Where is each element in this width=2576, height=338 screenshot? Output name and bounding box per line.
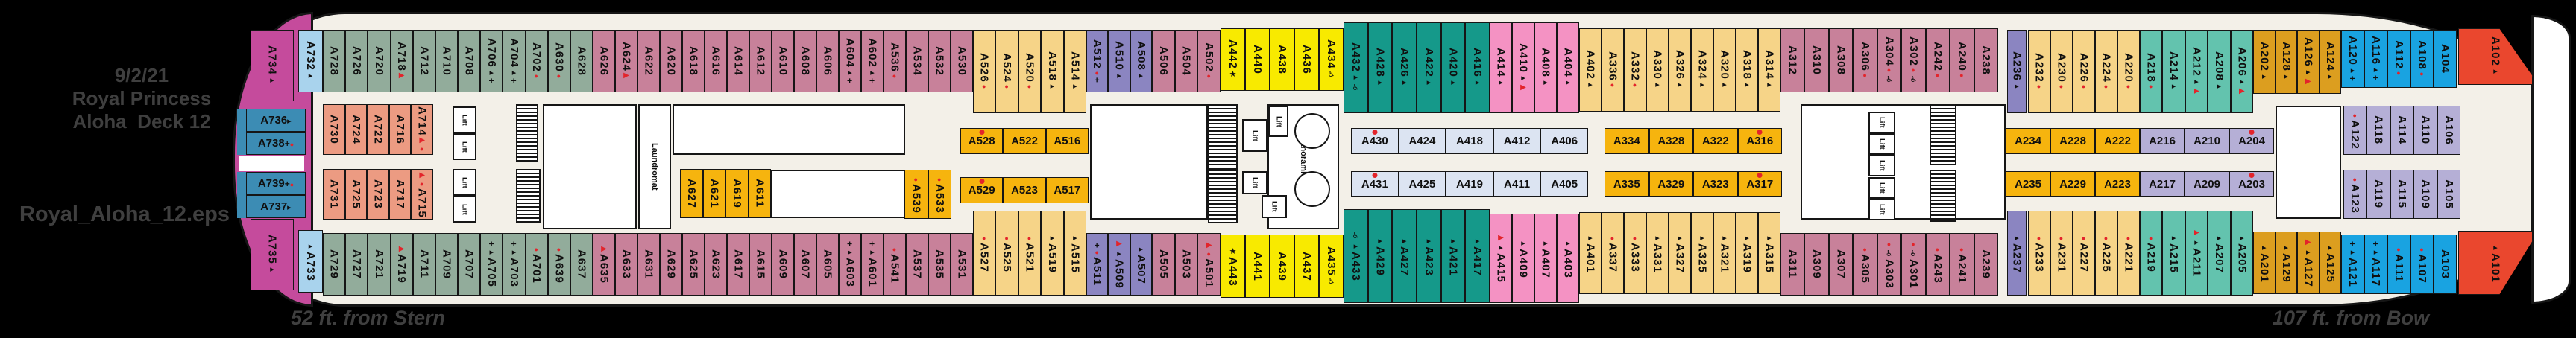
cabin-number: A624▶ xyxy=(621,42,632,80)
cabin-A623[interactable]: A623 xyxy=(705,233,727,296)
cabin-A401[interactable]: ▸A401 xyxy=(1579,212,1602,294)
cabin-A723[interactable]: A723 xyxy=(367,169,389,220)
cabin-A302[interactable]: A302●♿ xyxy=(1901,28,1925,92)
cabin-A242[interactable]: A242● xyxy=(1926,28,1950,92)
cabin-A502[interactable]: A502● xyxy=(1197,30,1221,92)
cabin-A539[interactable]: ●A539 xyxy=(904,170,928,219)
lift-box[interactable]: Lift xyxy=(453,196,476,223)
cabin-A303[interactable]: ●♿A303 xyxy=(1877,233,1901,296)
cabin-A410[interactable]: A410▸▶ xyxy=(1512,22,1534,113)
cabin-A402[interactable]: A402▸ xyxy=(1579,28,1602,112)
cabin-A443[interactable]: ★A443 xyxy=(1221,235,1245,298)
cabin-A428[interactable]: A428▸ xyxy=(1368,22,1393,113)
lift-box[interactable]: Lift xyxy=(453,133,476,160)
cabin-A406[interactable]: A406 xyxy=(1540,128,1588,154)
cabin-A232[interactable]: A232● xyxy=(2028,30,2050,113)
cabin-A301[interactable]: ●♿A301 xyxy=(1901,233,1925,296)
lift-box[interactable]: Lift xyxy=(1868,155,1895,176)
cabin-A416[interactable]: A416▸ xyxy=(1465,22,1490,113)
cabin-A704[interactable]: A704▸+ xyxy=(503,30,525,92)
cabin-A311[interactable]: A311 xyxy=(1780,233,1804,296)
cabin-A739[interactable]: A739+● xyxy=(246,172,306,195)
cabin-A525[interactable]: ●A525 xyxy=(995,211,1018,296)
cabin-number: A116▸+ xyxy=(2370,36,2381,81)
cabin-A101[interactable]: ▸A101 xyxy=(2458,231,2533,295)
cabin-A330[interactable]: A330▸ xyxy=(1646,28,1669,112)
cabin-A618[interactable]: A618 xyxy=(682,30,705,92)
cabin-A221[interactable]: ●A221 xyxy=(2117,211,2140,296)
cabin-A707[interactable]: A707 xyxy=(458,233,480,296)
cabin-A424[interactable]: A424 xyxy=(1399,128,1446,154)
cabin-A433[interactable]: ♿▸A433 xyxy=(1344,209,1368,303)
cabin-A511[interactable]: +●A511 xyxy=(1086,233,1108,296)
cabin-A243[interactable]: ●A243 xyxy=(1926,233,1950,296)
cabin-A610[interactable]: A610 xyxy=(772,30,794,92)
cabin-A501[interactable]: ▶●A501 xyxy=(1197,233,1221,296)
cabin-A530[interactable]: A530 xyxy=(951,30,973,92)
cabin-A208[interactable]: A208▸ xyxy=(2208,30,2230,113)
cabin-A241[interactable]: ●A241 xyxy=(1950,233,1974,296)
cabin-A425[interactable]: A425 xyxy=(1399,171,1446,197)
cabin-A333[interactable]: ●A333 xyxy=(1624,212,1646,294)
cabin-A628[interactable]: A628 xyxy=(570,30,593,92)
cabin-A537[interactable]: A537 xyxy=(906,233,928,296)
cabin-A336[interactable]: A336● xyxy=(1602,28,1624,112)
cabin-A536[interactable]: A536● xyxy=(884,30,906,92)
cabin-A604[interactable]: A604▸+ xyxy=(839,30,861,92)
cabin-A105[interactable]: A105 xyxy=(2437,170,2460,219)
cabin-A233[interactable]: ●A233 xyxy=(2028,211,2050,296)
cabin-A438[interactable]: A438 xyxy=(1270,28,1294,91)
cabin-A522[interactable]: A522 xyxy=(1003,128,1045,154)
cabin-A222[interactable]: A222 xyxy=(2095,128,2140,154)
lift-box[interactable]: Lift xyxy=(1868,133,1895,155)
cabin-A435[interactable]: A435♿ xyxy=(1319,235,1344,298)
cabin-number: A422▸ xyxy=(1423,48,1435,88)
cabin-A335[interactable]: A335 xyxy=(1605,171,1649,197)
cabin-A129[interactable]: ▸A129 xyxy=(2276,232,2298,294)
cabin-A514[interactable]: A514▸ xyxy=(1064,30,1086,113)
cabin-A720[interactable]: A720 xyxy=(368,30,390,92)
cabin-A614[interactable]: A614 xyxy=(727,30,749,92)
cabin-number: A629 xyxy=(666,249,677,279)
cabin-A630[interactable]: A630● xyxy=(548,30,570,92)
cabin-A627[interactable]: A627 xyxy=(680,169,703,218)
cabin-A635[interactable]: ▶A635 xyxy=(593,233,615,296)
cabin-A524[interactable]: A524● xyxy=(995,30,1018,113)
cabin-A218[interactable]: A218● xyxy=(2140,30,2162,113)
cabin-A429[interactable]: ▸A429 xyxy=(1368,209,1393,303)
cabin-A305[interactable]: ●A305 xyxy=(1853,233,1877,296)
cabin-A239[interactable]: A239 xyxy=(1974,233,1998,296)
cabin-A701[interactable]: ●A701 xyxy=(526,233,548,296)
cabin-A605[interactable]: A605 xyxy=(816,233,839,296)
cabin-A403[interactable]: ▸A403 xyxy=(1557,214,1579,303)
cabin-A541[interactable]: ●A541 xyxy=(884,233,906,296)
cabin-number: A529 xyxy=(969,185,995,196)
cabin-A510[interactable]: A510▸ xyxy=(1108,30,1130,92)
cabin-A204[interactable]: A204 xyxy=(2229,128,2274,154)
cabin-A207[interactable]: ▸A207 xyxy=(2208,211,2230,296)
cabin-A601[interactable]: +▸A601 xyxy=(861,233,884,296)
lift-box[interactable]: Lift xyxy=(1242,171,1267,194)
cabin-A226[interactable]: A226● xyxy=(2073,30,2095,113)
lift-box[interactable]: Lift xyxy=(453,169,476,196)
cabin-A625[interactable]: A625 xyxy=(682,233,705,296)
cabin-A521[interactable]: ●A521 xyxy=(1018,211,1041,296)
cabin-A637[interactable]: A637 xyxy=(570,233,593,296)
cabin-A420[interactable]: A420▸ xyxy=(1441,22,1466,113)
cabin-A104[interactable]: A104 xyxy=(2434,30,2457,88)
cabin-A518[interactable]: A518▸ xyxy=(1041,30,1063,113)
cabin-A201[interactable]: ▸A201 xyxy=(2253,232,2276,294)
cabin-A709[interactable]: A709 xyxy=(435,233,458,296)
cabin-A728[interactable]: A728 xyxy=(323,30,345,92)
cabin-A612[interactable]: A612 xyxy=(749,30,772,92)
cabin-number: A716 xyxy=(394,115,406,144)
cabin-strip: A311A309A307●A305●♿A303●♿A301●A243●A241A… xyxy=(1780,233,1998,296)
cabin-A706[interactable]: A706▸+ xyxy=(480,30,503,92)
cabin-A212[interactable]: A212▸▶ xyxy=(2185,30,2208,113)
lift-box[interactable]: Lift xyxy=(1269,106,1288,137)
cabin-A111[interactable]: ●A111 xyxy=(2387,235,2410,294)
cabin-A629[interactable]: A629 xyxy=(660,233,682,296)
cabin-A633[interactable]: A633 xyxy=(615,233,637,296)
cabin-number: ▸A507 xyxy=(1136,244,1147,284)
cabin-A724[interactable]: A724 xyxy=(345,104,368,155)
cabin-strip: A334A328A322A316 xyxy=(1605,128,1782,154)
cabin-A535[interactable]: A535 xyxy=(928,233,951,296)
cabin-A611[interactable]: A611 xyxy=(749,169,772,218)
cabin-A418[interactable]: A418 xyxy=(1446,128,1493,154)
cabin-A122[interactable]: ●A122 xyxy=(2343,106,2366,155)
cabin-A124[interactable]: A124▸ xyxy=(2320,30,2342,94)
cabin-A115[interactable]: A115 xyxy=(2390,170,2413,219)
cabin-A203[interactable]: A203 xyxy=(2229,171,2274,197)
cabin-A436[interactable]: A436 xyxy=(1294,28,1319,91)
cabin-number: ▸A205 xyxy=(2236,233,2247,273)
cabin-A617[interactable]: A617 xyxy=(727,233,749,296)
cabin-A102[interactable]: A102▸ xyxy=(2458,28,2533,85)
cabin-A322[interactable]: A322 xyxy=(1693,128,1738,154)
cabin-A512[interactable]: A512●+ xyxy=(1086,30,1108,92)
cabin-A328[interactable]: A328 xyxy=(1649,128,1694,154)
cabin-A509[interactable]: ▶▸A509 xyxy=(1108,233,1130,296)
cabin-A439[interactable]: A439 xyxy=(1270,235,1294,298)
lift-box[interactable]: Lift xyxy=(1242,119,1267,152)
stairs-icon xyxy=(1930,104,1956,165)
cabin-A534[interactable]: A534 xyxy=(906,30,928,92)
cabin-A308[interactable]: A308 xyxy=(1829,28,1853,92)
cabin-A427[interactable]: ▸A427 xyxy=(1392,209,1417,303)
cabin-A714[interactable]: A714▶● xyxy=(411,104,433,155)
cabin-A320[interactable]: A320▸ xyxy=(1713,28,1736,112)
cabin-A703[interactable]: +▸A703 xyxy=(503,233,525,296)
cabin-A736[interactable]: A736▸ xyxy=(246,109,306,132)
cabin-A716[interactable]: A716 xyxy=(389,104,412,155)
cabin-A426[interactable]: A426▸ xyxy=(1392,22,1417,113)
cabin-A440[interactable]: A440 xyxy=(1245,28,1270,91)
cabin-A324[interactable]: A324▸ xyxy=(1691,28,1713,112)
cabin-A417[interactable]: ▸A417 xyxy=(1465,209,1490,303)
cabin-number: A607 xyxy=(800,249,811,279)
cabin-strip: A402▸A336●A332●A330▸A326▸A324▸A320▸A318▸… xyxy=(1579,28,1780,112)
cabin-A508[interactable]: A508▸ xyxy=(1130,30,1152,92)
cabin-A234[interactable]: A234 xyxy=(2006,128,2050,154)
cabin-A733[interactable]: ▸A733 xyxy=(298,230,323,293)
cabin-A117[interactable]: +▸A117 xyxy=(2364,235,2387,294)
cabin-A119[interactable]: A119 xyxy=(2366,170,2390,219)
cabin-A622[interactable]: A622 xyxy=(637,30,660,92)
cabin-A504[interactable]: A504 xyxy=(1175,30,1198,92)
cabin-A423[interactable]: ▸A423 xyxy=(1417,209,1441,303)
cabin-number: +▸A703 xyxy=(508,241,520,287)
cabin-A719[interactable]: ▶A719 xyxy=(391,233,413,296)
cabin-A718[interactable]: A718▶ xyxy=(391,30,413,92)
cabin-A118[interactable]: A118 xyxy=(2366,106,2390,155)
cabin-A734[interactable]: A734▸ xyxy=(251,30,294,101)
cabin-A123[interactable]: ●A123 xyxy=(2343,170,2366,219)
cabin-A334[interactable]: A334 xyxy=(1605,128,1649,154)
cabin-A318[interactable]: A318▸ xyxy=(1736,28,1758,112)
cabin-A337[interactable]: ●A337 xyxy=(1602,212,1624,294)
cabin-A431[interactable]: A431 xyxy=(1351,171,1399,197)
cabin-A437[interactable]: A437 xyxy=(1294,235,1319,298)
cabin-A112[interactable]: A112● xyxy=(2387,30,2410,88)
cabin-A312[interactable]: A312 xyxy=(1780,28,1804,92)
cabin-A609[interactable]: A609 xyxy=(772,233,794,296)
cabin-A520[interactable]: A520● xyxy=(1018,30,1041,113)
lift-box[interactable]: Lift xyxy=(1868,177,1895,199)
cabin-A225[interactable]: ●A225 xyxy=(2095,211,2117,296)
cabin-number: A438 xyxy=(1276,45,1288,74)
red-dot-icon xyxy=(1372,173,1377,178)
cabin-A616[interactable]: A616 xyxy=(705,30,727,92)
cabin-number: A323 xyxy=(1702,179,1729,190)
cabin-A327[interactable]: ▸A327 xyxy=(1669,212,1691,294)
cabin-A224[interactable]: A224● xyxy=(2095,30,2117,113)
cabin-A626[interactable]: A626 xyxy=(593,30,615,92)
cabin-A103[interactable]: A103 xyxy=(2434,235,2457,294)
cabin-A737[interactable]: A737▸ xyxy=(246,195,306,218)
cabin-A310[interactable]: A310 xyxy=(1804,28,1828,92)
cabin-A507[interactable]: ▸A507 xyxy=(1130,233,1152,296)
cabin-number: A731 xyxy=(328,179,339,209)
cabin-A721[interactable]: A721 xyxy=(368,233,390,296)
cabin-number: ▸A417 xyxy=(1472,236,1483,276)
cabin-A216[interactable]: A216 xyxy=(2140,128,2185,154)
cabin-A214[interactable]: A214▸ xyxy=(2162,30,2185,113)
cabin-A125[interactable]: ▸A125 xyxy=(2320,232,2342,294)
cabin-A110[interactable]: A110 xyxy=(2413,106,2437,155)
cabin-A414[interactable]: A414▸ xyxy=(1490,22,1512,113)
lift-box[interactable]: Lift xyxy=(453,106,476,133)
cabin-A717[interactable]: A717 xyxy=(389,169,412,220)
cabin-A731[interactable]: A731 xyxy=(323,169,345,220)
cabin-A219[interactable]: ●A219 xyxy=(2140,211,2162,296)
cabin-A223[interactable]: A223 xyxy=(2095,171,2140,197)
cabin-A615[interactable]: A615 xyxy=(749,233,772,296)
cabin-A206[interactable]: A206▸▶ xyxy=(2231,30,2253,113)
cabin-A405[interactable]: A405 xyxy=(1540,171,1588,197)
cabin-A325[interactable]: ▸A325 xyxy=(1691,212,1713,294)
cabin-A727[interactable]: A727 xyxy=(345,233,368,296)
cabin-A527[interactable]: ●A527 xyxy=(973,211,995,296)
cabin-A639[interactable]: ●A639 xyxy=(548,233,570,296)
cabin-number: ●A333 xyxy=(1630,235,1641,272)
cabin-A602[interactable]: A602▸+ xyxy=(861,30,884,92)
cabin-A722[interactable]: A722 xyxy=(367,104,389,155)
cabin-A621[interactable]: A621 xyxy=(703,169,726,218)
cabin-A529[interactable]: A529 xyxy=(960,177,1003,203)
cabin-A533[interactable]: ●A533 xyxy=(928,170,952,219)
cabin-A735[interactable]: A735▸ xyxy=(251,219,294,290)
cabin-A238[interactable]: A238 xyxy=(1974,28,1998,92)
cabin-A404[interactable]: A404▸ xyxy=(1557,22,1579,113)
cabin-A411[interactable]: A411 xyxy=(1493,171,1541,197)
cabin-A421[interactable]: ▸A421 xyxy=(1441,209,1466,303)
cabin-A332[interactable]: A332● xyxy=(1624,28,1646,112)
cabin-A412[interactable]: A412 xyxy=(1493,128,1541,154)
cabin-A205[interactable]: ▸A205 xyxy=(2231,211,2253,296)
cabin-A323[interactable]: A323 xyxy=(1693,171,1738,197)
cabin-A331[interactable]: ▸A331 xyxy=(1646,212,1669,294)
cabin-A215[interactable]: ▸A215 xyxy=(2162,211,2185,296)
cabin-A230[interactable]: A230● xyxy=(2050,30,2073,113)
cabin-A315[interactable]: ▸A315 xyxy=(1758,212,1780,294)
cabin-A120[interactable]: A120▸+ xyxy=(2341,30,2364,88)
cabin-A519[interactable]: ▸A519 xyxy=(1041,211,1063,296)
cabin-A321[interactable]: ▸A321 xyxy=(1713,212,1736,294)
cabin-number: A710 xyxy=(441,46,452,76)
cabin-A631[interactable]: A631 xyxy=(637,233,660,296)
cabin-A725[interactable]: A725 xyxy=(345,169,368,220)
cabin-A108[interactable]: A108● xyxy=(2410,30,2434,88)
cabin-A702[interactable]: A702● xyxy=(526,30,548,92)
cabin-A726[interactable]: A726 xyxy=(345,30,368,92)
cabin-A127[interactable]: ▶▸A127 xyxy=(2297,232,2320,294)
cabin-A430[interactable]: A430 xyxy=(1351,128,1399,154)
cabin-A620[interactable]: A620 xyxy=(660,30,682,92)
cabin-A715[interactable]: ▶●A715 xyxy=(411,169,433,220)
cabin-A409[interactable]: ▸A409 xyxy=(1512,214,1534,303)
cabin-A712[interactable]: A712 xyxy=(413,30,435,92)
cabin-A316[interactable]: A316 xyxy=(1738,128,1783,154)
cabin-A526[interactable]: A526● xyxy=(973,30,995,113)
cabin-A114[interactable]: A114 xyxy=(2390,106,2413,155)
cabin-A730[interactable]: A730 xyxy=(323,104,345,155)
cabin-A441[interactable]: A441 xyxy=(1245,235,1270,298)
cabin-strip: A235A229A223 xyxy=(2006,171,2140,197)
cabin-A240[interactable]: A240● xyxy=(1950,28,1974,92)
cabin-A314[interactable]: A314▸ xyxy=(1758,28,1780,112)
cabin-A202[interactable]: A202▸ xyxy=(2253,30,2276,94)
cabin-A407[interactable]: ▸A407 xyxy=(1534,214,1557,303)
lift-box[interactable]: Lift xyxy=(1868,112,1895,133)
cabin-number: A212▸▶ xyxy=(2191,47,2202,96)
cabin-A738[interactable]: A738+● xyxy=(246,132,306,155)
cabin-A121[interactable]: +▸A121 xyxy=(2341,235,2364,294)
cabin-A408[interactable]: A408▸ xyxy=(1534,22,1557,113)
cabin-A228[interactable]: A228 xyxy=(2050,128,2095,154)
lift-box[interactable]: Lift xyxy=(1868,199,1895,220)
cabin-A505[interactable]: A505 xyxy=(1152,233,1175,296)
cabin-A705[interactable]: +▸A705 xyxy=(480,233,503,296)
cabin-A306[interactable]: A306● xyxy=(1853,28,1877,92)
cabin-A711[interactable]: A711 xyxy=(413,233,435,296)
cabin-A309[interactable]: A309 xyxy=(1804,233,1828,296)
cabin-A531[interactable]: A531 xyxy=(951,233,973,296)
cabin-A236[interactable]: A236▸ xyxy=(2007,30,2027,113)
cabin-A317[interactable]: A317 xyxy=(1738,171,1783,197)
cabin-A710[interactable]: A710 xyxy=(435,30,458,92)
cabin-A319[interactable]: ▸A319 xyxy=(1736,212,1758,294)
cabin-A329[interactable]: A329 xyxy=(1649,171,1694,197)
cabin-A603[interactable]: +▸A603 xyxy=(839,233,861,296)
cabin-A126[interactable]: A126▸▶ xyxy=(2297,30,2320,94)
cabin-A211[interactable]: ▶▸A211 xyxy=(2185,211,2208,296)
cabin-A235[interactable]: A235 xyxy=(2006,171,2050,197)
cabin-A307[interactable]: A307 xyxy=(1829,233,1853,296)
cabin-A209[interactable]: A209 xyxy=(2185,171,2229,197)
cabin-A432[interactable]: A432▸♿ xyxy=(1344,22,1368,113)
cabin-strip: A505A503▶●A501 xyxy=(1152,233,1221,296)
cabin-number: ▶▸A127 xyxy=(2302,238,2314,287)
cabin-A107[interactable]: ●A107 xyxy=(2410,235,2434,294)
cabin-A515[interactable]: ▸A515 xyxy=(1064,211,1086,296)
cabin-A503[interactable]: A503 xyxy=(1175,233,1198,296)
cabin-A607[interactable]: A607 xyxy=(794,233,816,296)
cabin-A419[interactable]: A419 xyxy=(1446,171,1493,197)
cabin-A220[interactable]: A220● xyxy=(2117,30,2140,113)
cabin-number: A120▸+ xyxy=(2347,36,2358,82)
cabin-A128[interactable]: A128▸ xyxy=(2276,30,2298,94)
cabin-A606[interactable]: A606 xyxy=(816,30,839,92)
cabin-A304[interactable]: A304●♿ xyxy=(1877,28,1901,92)
cabin-A229[interactable]: A229 xyxy=(2050,171,2095,197)
cabin-A516[interactable]: A516 xyxy=(1046,128,1089,154)
cabin-A608[interactable]: A608 xyxy=(794,30,816,92)
cabin-A619[interactable]: A619 xyxy=(725,169,749,218)
cabin-A116[interactable]: A116▸+ xyxy=(2364,30,2387,88)
cabin-A106[interactable]: A106 xyxy=(2437,106,2460,155)
cabin-A532[interactable]: A532 xyxy=(928,30,951,92)
cabin-A624[interactable]: A624▶ xyxy=(615,30,637,92)
cabin-A227[interactable]: ●A227 xyxy=(2073,211,2095,296)
cabin-A237[interactable]: ▸A237 xyxy=(2007,211,2027,296)
cabin-A523[interactable]: A523 xyxy=(1003,177,1045,203)
cabin-number: A217 xyxy=(2149,179,2176,190)
cabin-A442[interactable]: A442★ xyxy=(1221,28,1245,91)
cabin-A217[interactable]: A217 xyxy=(2140,171,2185,197)
cabin-A517[interactable]: A517 xyxy=(1046,177,1089,203)
cabin-A109[interactable]: A109 xyxy=(2413,170,2437,219)
cabin-number: ▸A327 xyxy=(1675,233,1686,273)
cabin-A415[interactable]: ▶▸A415 xyxy=(1490,214,1512,303)
lift-box[interactable]: Lift xyxy=(1262,195,1287,218)
cabin-A732[interactable]: A732▸ xyxy=(298,30,323,92)
cabin-A434[interactable]: A434♿ xyxy=(1319,28,1344,91)
cabin-A708[interactable]: A708 xyxy=(458,30,480,92)
cabin-A729[interactable]: A729 xyxy=(323,233,345,296)
cabin-strip: A737▸ xyxy=(246,195,306,218)
cabin-A506[interactable]: A506 xyxy=(1152,30,1175,92)
cabin-A231[interactable]: ●A231 xyxy=(2050,211,2073,296)
cabin-A326[interactable]: A326▸ xyxy=(1669,28,1691,112)
cabin-A210[interactable]: A210 xyxy=(2185,128,2229,154)
cabin-A528[interactable]: A528 xyxy=(960,128,1003,154)
cabin-A422[interactable]: A422▸ xyxy=(1417,22,1441,113)
